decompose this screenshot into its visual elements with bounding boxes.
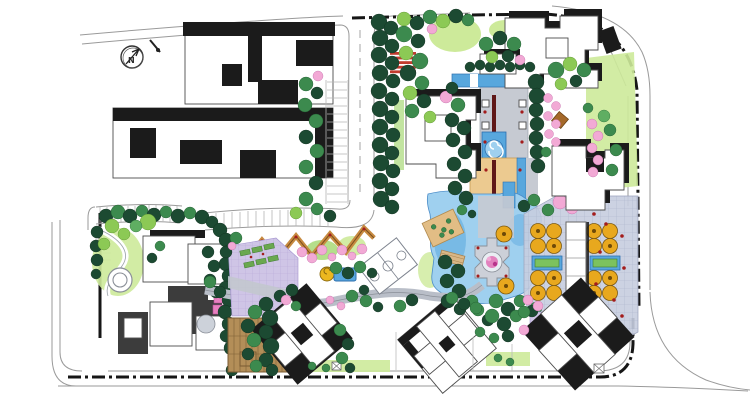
site-plan-canvas: N xyxy=(0,0,750,404)
small-plaza xyxy=(197,315,215,333)
north-arrow-label: N xyxy=(128,56,135,65)
north-arrow: N xyxy=(121,40,160,68)
parking-stalls-south xyxy=(216,209,328,228)
master-plan-drawing: N xyxy=(0,0,750,404)
basketball-court xyxy=(359,238,418,294)
